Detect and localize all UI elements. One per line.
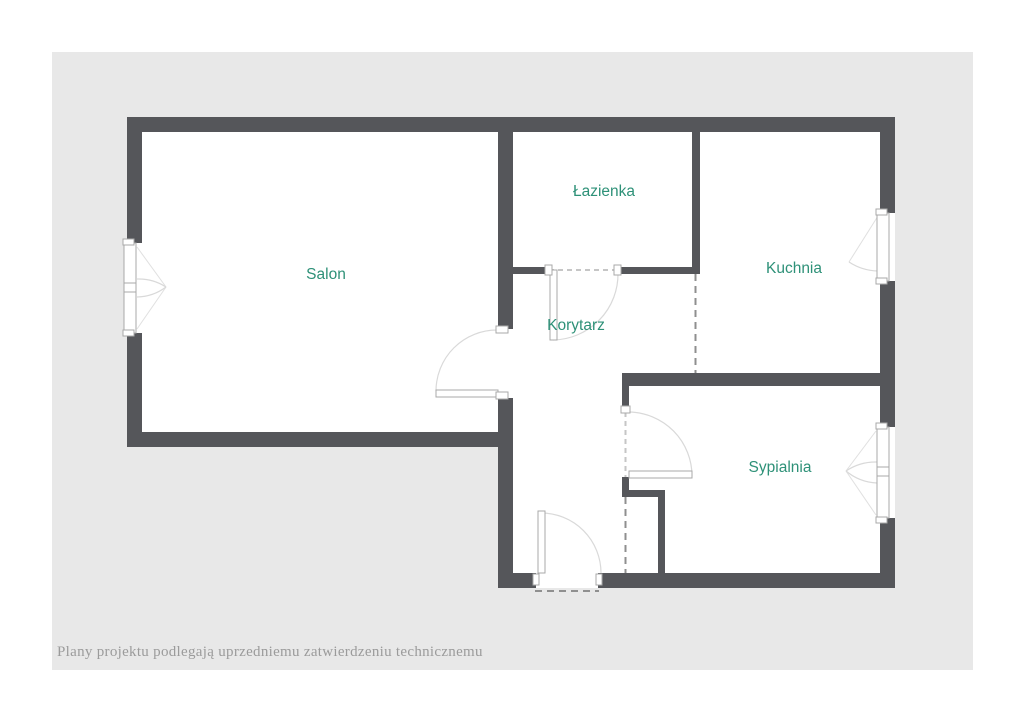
wall-bottom-left xyxy=(498,573,536,588)
door-jamb xyxy=(496,392,508,399)
door-jamb xyxy=(614,265,621,275)
room-label-sypialnia: Sypialnia xyxy=(749,459,812,476)
door-leaf xyxy=(538,511,545,573)
room-label-kuchnia: Kuchnia xyxy=(766,260,822,277)
wall-bathroom-bottom-right xyxy=(618,267,700,274)
wall-right-upper xyxy=(880,117,895,213)
floor-plan-drawing: Salon Łazienka Kuchnia Korytarz Sypialni… xyxy=(0,0,1024,724)
door-jamb xyxy=(621,406,630,413)
wall-salon-bottom xyxy=(127,432,513,447)
window-cap xyxy=(123,239,134,245)
door-jamb xyxy=(533,574,539,585)
window-cap xyxy=(876,278,887,284)
window-mullion xyxy=(877,467,889,476)
wall-nook-top xyxy=(622,490,665,497)
wall-left-upper xyxy=(127,117,142,243)
window-cap xyxy=(876,423,887,429)
wall-nook-side xyxy=(658,497,665,573)
floor-plan-page: Salon Łazienka Kuchnia Korytarz Sypialni… xyxy=(0,0,1024,724)
window-frame xyxy=(877,213,889,281)
wall-bedroom-top xyxy=(622,373,880,386)
room-label-salon: Salon xyxy=(306,266,346,283)
room-label-lazienka: Łazienka xyxy=(573,183,635,200)
window-cap xyxy=(876,517,887,523)
window-mullion xyxy=(124,283,136,292)
door-jamb xyxy=(545,265,552,275)
wall-salon-corridor-lower xyxy=(498,398,513,588)
wall-left-lower xyxy=(127,333,142,447)
wall-bathroom-bottom-left xyxy=(513,267,548,274)
wall-bottom-right xyxy=(598,573,895,588)
wall-salon-corridor-upper xyxy=(498,117,513,329)
window-cap xyxy=(876,209,887,215)
window-cap xyxy=(123,330,134,336)
room-label-korytarz: Korytarz xyxy=(547,317,605,334)
door-leaf xyxy=(436,390,498,397)
disclaimer-text: Plany projektu podlegają uprzedniemu zat… xyxy=(57,644,483,661)
door-jamb xyxy=(596,574,602,585)
wall-bathroom-kitchen xyxy=(692,132,700,267)
door-jamb xyxy=(496,326,508,333)
door-leaf xyxy=(629,471,692,478)
wall-right-middle xyxy=(880,281,895,427)
